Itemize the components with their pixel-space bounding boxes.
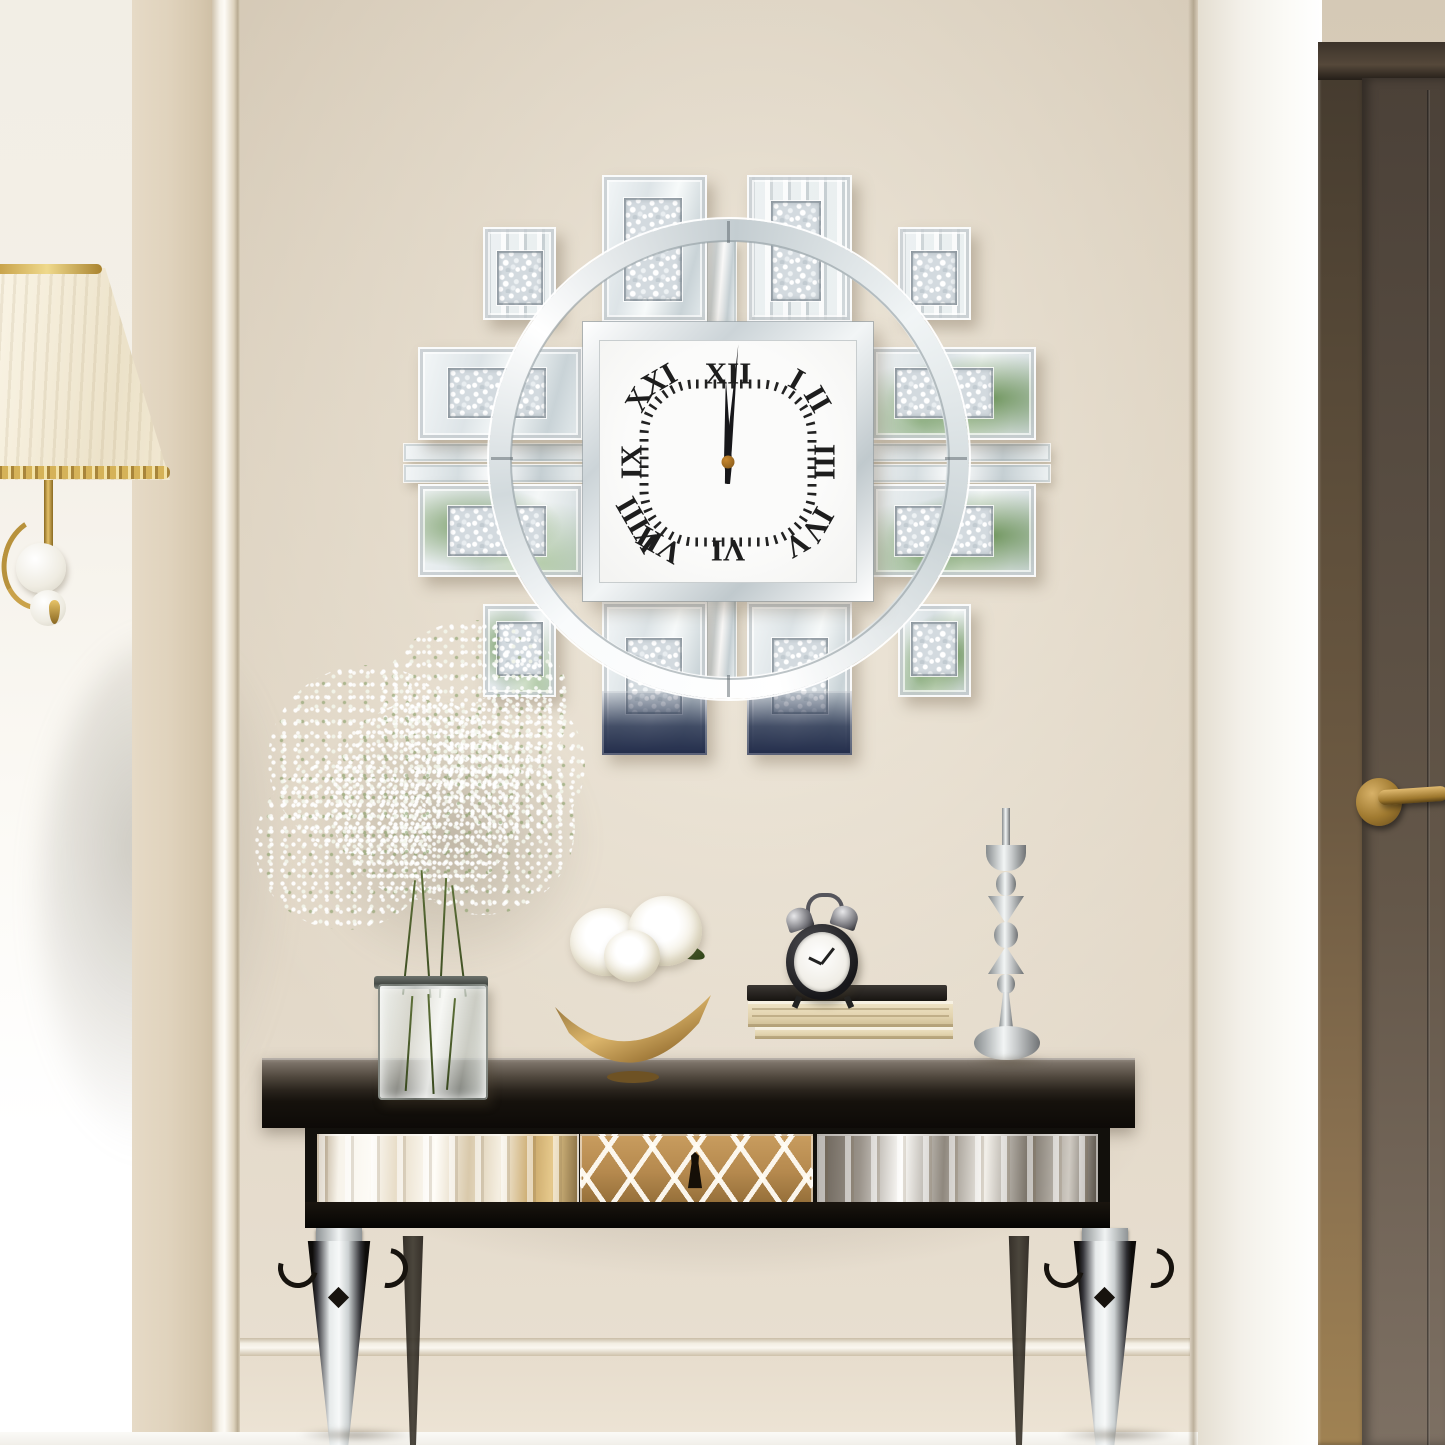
ring-seam	[491, 457, 513, 460]
ring-seam	[727, 675, 730, 697]
table-rail	[305, 1202, 1110, 1228]
candlestick-ball	[996, 872, 1016, 896]
candlestick-knop	[997, 974, 1015, 994]
ring-seam	[727, 221, 730, 243]
clock-numeral: IX	[616, 445, 647, 479]
crystal-inlay	[911, 622, 957, 676]
stem-in-vase	[446, 998, 456, 1090]
clock-numeral: XII	[705, 358, 752, 389]
crystal-inlay	[911, 251, 957, 305]
alarm-clock-face	[794, 932, 850, 992]
candlestick-twist	[994, 922, 1018, 948]
drawer-keyhole	[684, 1152, 706, 1190]
mirror-panel-right	[817, 1134, 1098, 1204]
hallway-scene: XIIIIIIIIIVVVIVIIVIIIIXXXI	[0, 0, 1445, 1445]
glass-vase	[378, 984, 488, 1100]
stem-in-vase	[427, 994, 434, 1094]
clock-numeral: III	[810, 444, 841, 480]
clock-numeral: VI	[711, 536, 745, 567]
leg-floor-shadow	[296, 1428, 416, 1442]
clock-face: XIIIIIIIIIVVVIVIIVIIIIXXXI	[599, 340, 857, 583]
candlestick-base	[974, 1026, 1040, 1060]
alarm-clock-body	[786, 924, 858, 1000]
gold-crescent-bowl	[549, 985, 717, 1085]
drawer-lattice	[580, 1134, 813, 1204]
clock-face-frame: XIIIIIIIIIVVVIVIIVIIIIXXXI	[583, 322, 873, 601]
leg-floor-shadow	[1058, 1428, 1178, 1442]
flower-cluster	[445, 690, 585, 840]
book-pages-2	[755, 1027, 953, 1039]
white-peony	[604, 930, 660, 982]
leg-collar	[1082, 1228, 1128, 1241]
stem-in-vase	[405, 996, 414, 1091]
crystal-inlay	[497, 251, 543, 305]
candlestick-shadow	[968, 1056, 1052, 1068]
candlestick-pricket	[1002, 808, 1010, 846]
leg-collar	[316, 1228, 362, 1241]
clock-center-cap	[722, 456, 735, 469]
ring-seam	[945, 457, 967, 460]
mirror-panel-left	[317, 1134, 579, 1204]
